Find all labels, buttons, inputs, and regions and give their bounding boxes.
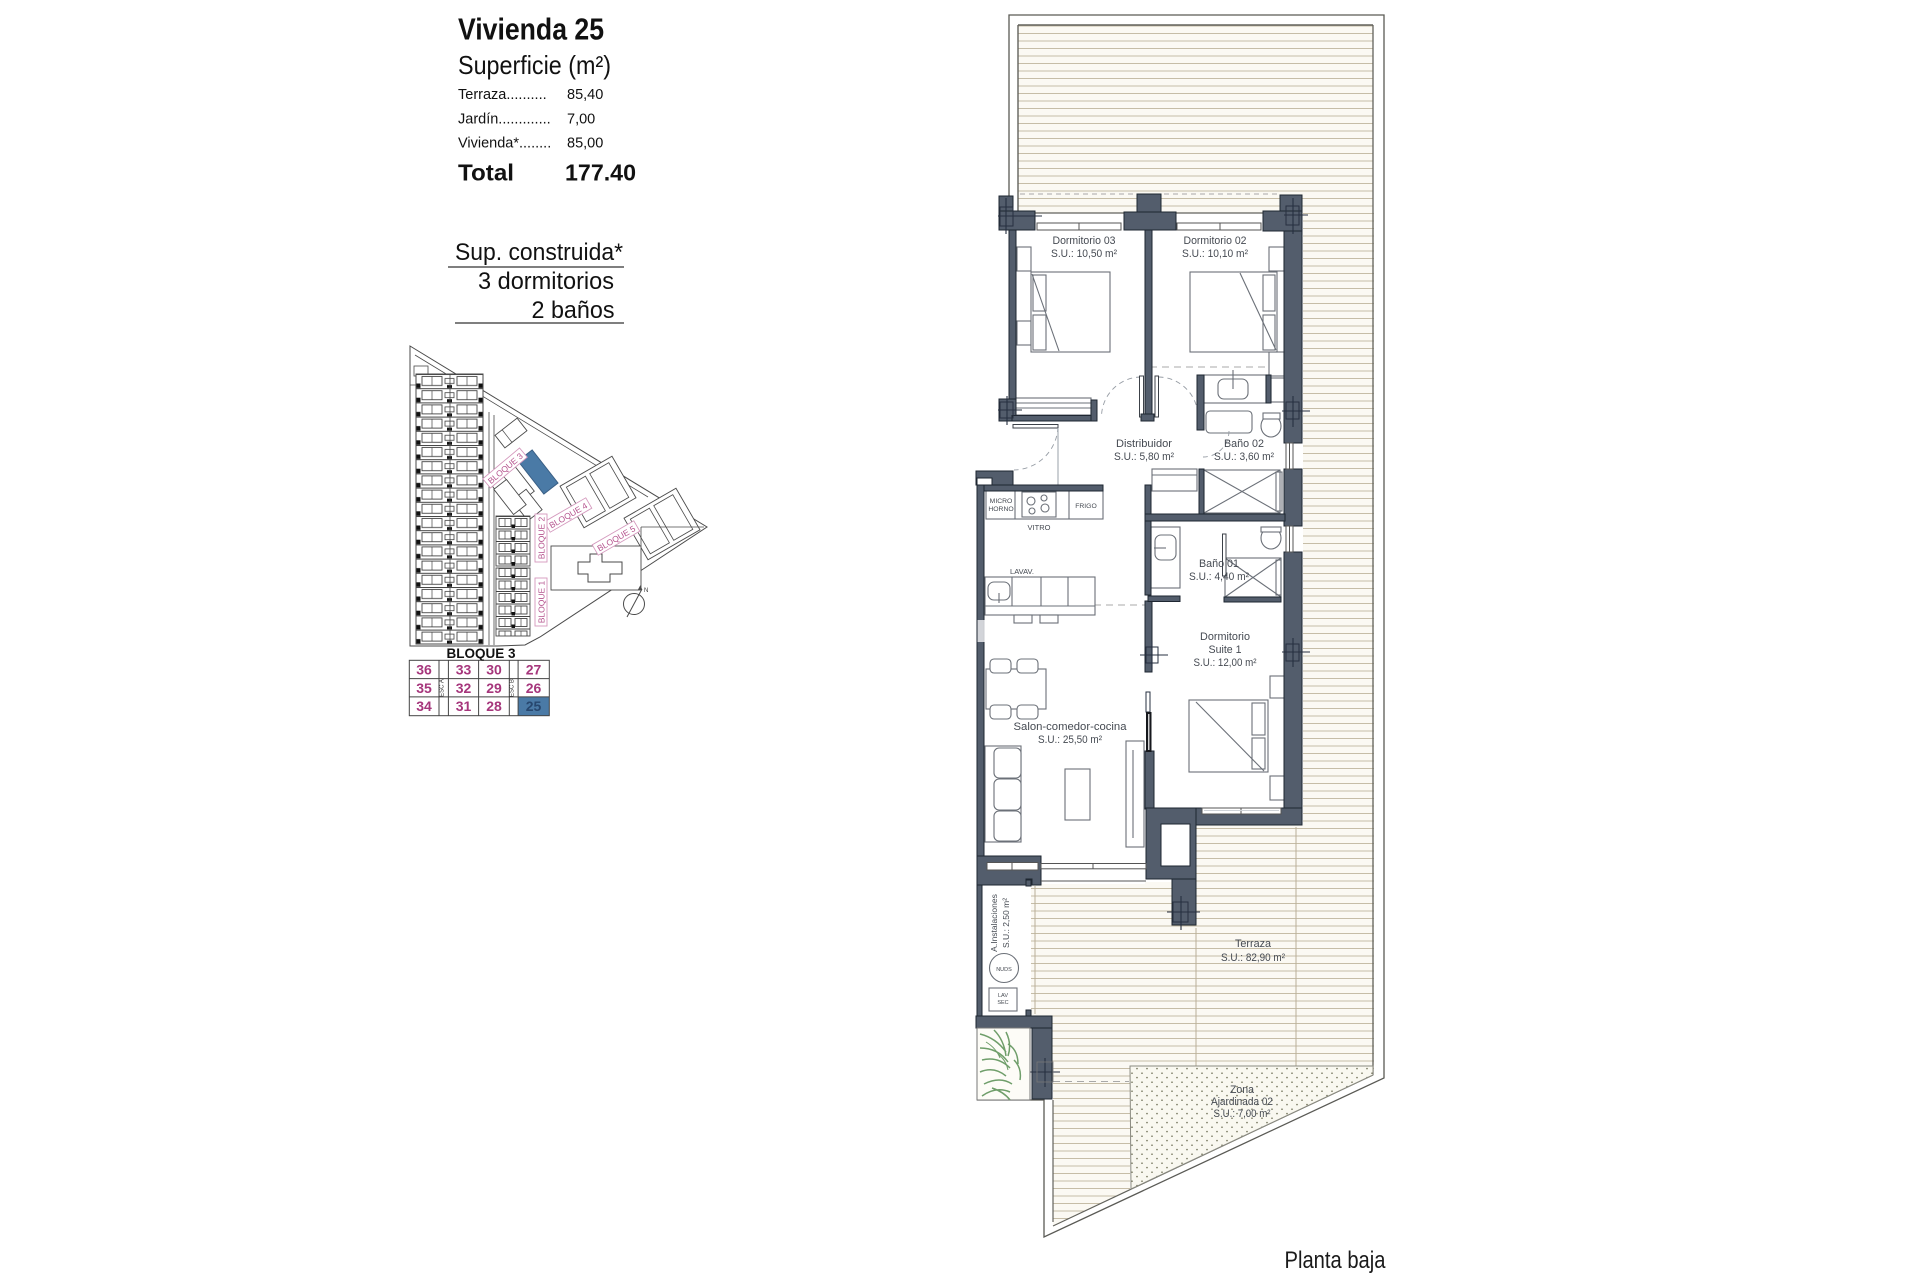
svg-text:35: 35 (416, 680, 432, 696)
svg-text:VITRO: VITRO (1028, 523, 1051, 532)
svg-text:85,40: 85,40 (567, 87, 603, 103)
svg-text:S.U.: 25,50 m²: S.U.: 25,50 m² (1038, 734, 1102, 746)
svg-text:S.U.: 4,40 m²: S.U.: 4,40 m² (1189, 571, 1249, 583)
svg-text:25: 25 (526, 698, 542, 714)
svg-text:Planta baja: Planta baja (1285, 1247, 1386, 1274)
svg-text:Baño 02: Baño 02 (1224, 438, 1264, 450)
svg-text:7,00: 7,00 (567, 112, 595, 128)
svg-text:MICRO: MICRO (990, 498, 1013, 505)
svg-text:S.U.: 82,90 m²: S.U.: 82,90 m² (1221, 952, 1285, 964)
svg-text:Total: Total (458, 160, 514, 186)
svg-text:27: 27 (526, 662, 542, 678)
svg-text:HORNO: HORNO (988, 506, 1013, 513)
svg-text:Dormitorio 02: Dormitorio 02 (1184, 235, 1247, 247)
svg-text:28: 28 (486, 698, 502, 714)
svg-text:Superficie (m²): Superficie (m²) (458, 50, 611, 80)
svg-text:Suite 1: Suite 1 (1209, 644, 1242, 656)
svg-text:Ajardinada 02: Ajardinada 02 (1211, 1096, 1273, 1108)
svg-text:S.U.: 5,80 m²: S.U.: 5,80 m² (1114, 451, 1174, 463)
svg-text:BLOQUE 1: BLOQUE 1 (537, 580, 547, 623)
svg-text:26: 26 (526, 680, 542, 696)
svg-text:S.U.: 10,10 m²: S.U.: 10,10 m² (1182, 248, 1248, 260)
svg-text:31: 31 (456, 698, 472, 714)
svg-text:Zona: Zona (1230, 1084, 1255, 1096)
svg-text:Jardín.............: Jardín............. (458, 112, 551, 128)
svg-text:36: 36 (416, 662, 432, 678)
svg-text:N: N (644, 588, 648, 594)
svg-text:Vivienda 25: Vivienda 25 (458, 12, 604, 47)
svg-text:S.U.: 10,50 m²: S.U.: 10,50 m² (1051, 248, 1117, 260)
svg-text:S.U.: 2,50 m²: S.U.: 2,50 m² (1001, 898, 1011, 948)
svg-text:85,00: 85,00 (567, 136, 603, 152)
svg-text:Terraza: Terraza (1235, 938, 1272, 950)
svg-text:Dormitorio 03: Dormitorio 03 (1053, 235, 1116, 247)
svg-text:S.U.: 12,00 m²: S.U.: 12,00 m² (1194, 657, 1257, 669)
svg-text:BLOQUE 3: BLOQUE 3 (446, 646, 516, 661)
svg-text:Dormitorio: Dormitorio (1200, 631, 1250, 643)
svg-text:34: 34 (416, 698, 432, 714)
svg-text:30: 30 (486, 662, 502, 678)
svg-text:3 dormitorios: 3 dormitorios (478, 268, 614, 295)
svg-text:Sup. construida*: Sup. construida* (455, 239, 623, 266)
svg-text:ESC B: ESC B (510, 679, 516, 697)
svg-text:SEC: SEC (997, 1000, 1008, 1006)
svg-text:Vivienda*........: Vivienda*........ (458, 136, 551, 152)
svg-text:LAV: LAV (998, 993, 1008, 999)
svg-text:Baño 01: Baño 01 (1199, 558, 1239, 570)
svg-text:29: 29 (486, 680, 502, 696)
svg-text:S.U.: 7,00 m²: S.U.: 7,00 m² (1214, 1108, 1271, 1120)
svg-text:LAVAV.: LAVAV. (1010, 567, 1034, 576)
svg-text:2 baños: 2 baños (532, 297, 615, 324)
svg-text:Salon-comedor-cocina: Salon-comedor-cocina (1014, 721, 1128, 733)
svg-text:33: 33 (456, 662, 472, 678)
svg-text:Distribuidor: Distribuidor (1116, 438, 1172, 450)
svg-text:Terraza..........: Terraza.......... (458, 87, 547, 103)
svg-text:A.Instalaciones: A.Instalaciones (989, 894, 999, 952)
svg-text:32: 32 (456, 680, 472, 696)
svg-text:177.40: 177.40 (565, 160, 636, 186)
svg-text:NUDS: NUDS (996, 967, 1012, 973)
svg-text:FRIGO: FRIGO (1075, 503, 1097, 510)
svg-text:S.U.: 3,60 m²: S.U.: 3,60 m² (1214, 451, 1274, 463)
svg-text:BLOQUE 2: BLOQUE 2 (537, 516, 547, 559)
svg-text:ESC A: ESC A (440, 679, 446, 697)
